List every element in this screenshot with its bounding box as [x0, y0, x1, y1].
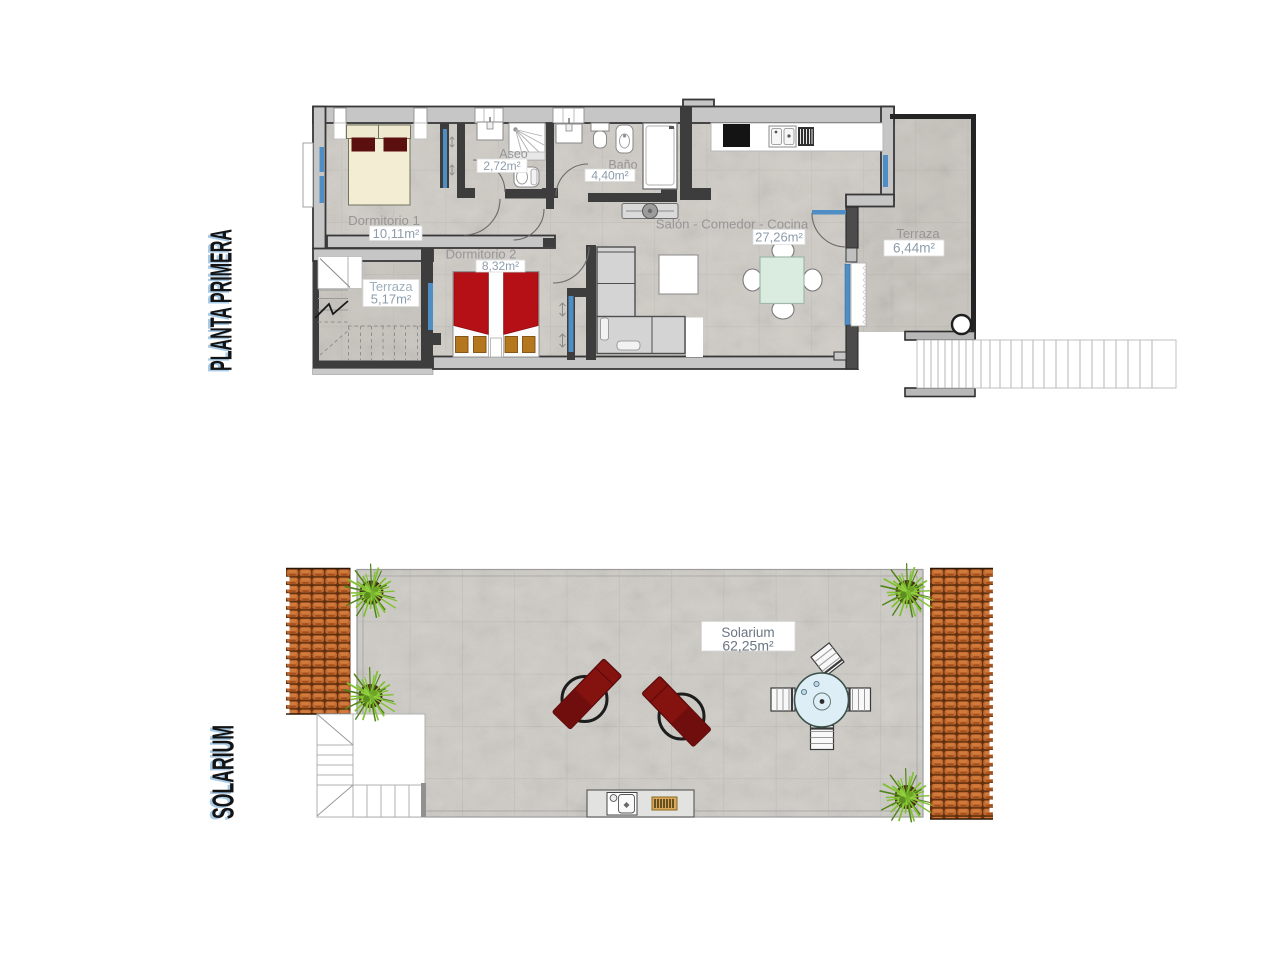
- svg-text:62,25m²: 62,25m²: [722, 638, 774, 654]
- svg-text:Terraza: Terraza: [896, 226, 940, 241]
- svg-text:5,17m²: 5,17m²: [371, 292, 412, 307]
- svg-text:PLANTA PRIMERA: PLANTA PRIMERA: [204, 229, 239, 371]
- svg-text:27,26m²: 27,26m²: [755, 230, 803, 245]
- svg-text:10,11m²: 10,11m²: [373, 226, 420, 241]
- svg-text:8,32m²: 8,32m²: [482, 259, 519, 273]
- svg-text:2,72m²: 2,72m²: [483, 159, 520, 173]
- svg-text:4,40m²: 4,40m²: [591, 169, 628, 183]
- svg-text:6,44m²: 6,44m²: [893, 241, 936, 256]
- svg-text:SOLARIUM: SOLARIUM: [206, 725, 241, 819]
